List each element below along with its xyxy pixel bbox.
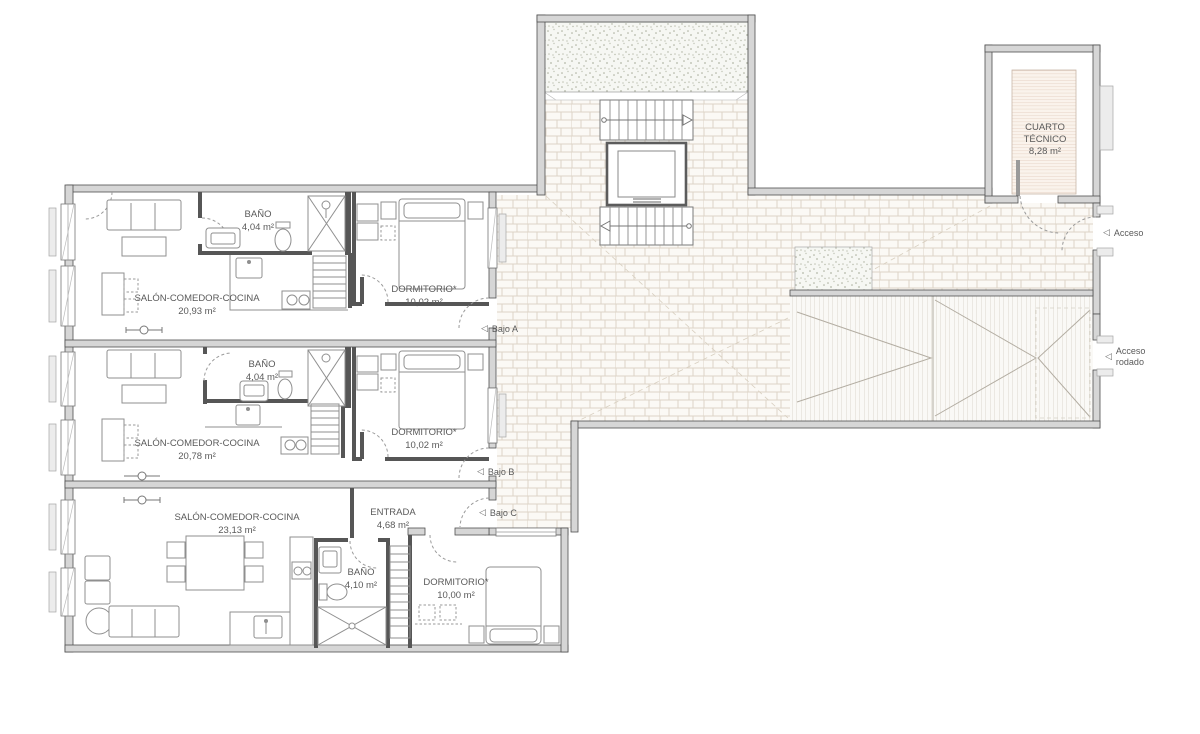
room-label-entrada: ENTRADA 4,68 m² bbox=[370, 506, 415, 532]
room-area: 8,28 m² bbox=[1024, 146, 1067, 158]
access-marker-acceso-rodado: ◁ Acceso rodado bbox=[1105, 346, 1145, 368]
direction-triangle-icon: ◁ bbox=[477, 468, 484, 477]
direction-triangle-icon: ◁ bbox=[1105, 353, 1112, 362]
gravel-bed-top bbox=[544, 22, 748, 100]
room-area: 20,78 m² bbox=[134, 450, 259, 463]
room-area: 10,02 m² bbox=[391, 439, 456, 452]
room-label-dormitorio-a: DORMITORIO* 10,02 m² bbox=[391, 283, 456, 309]
room-label-salon-b: SALÓN-COMEDOR-COCINA 20,78 m² bbox=[134, 437, 259, 463]
room-name: SALÓN-COMEDOR-COCINA bbox=[134, 292, 259, 305]
room-name: DORMITORIO* bbox=[391, 426, 456, 439]
room-label-cuarto-tecnico: CUARTO TÉCNICO 8,28 m² bbox=[1024, 122, 1067, 158]
room-area: 4,10 m² bbox=[345, 579, 377, 592]
access-label: Acceso bbox=[1114, 228, 1144, 238]
room-area: 4,68 m² bbox=[370, 519, 415, 532]
room-area: 23,13 m² bbox=[174, 524, 299, 537]
room-name: DORMITORIO* bbox=[423, 576, 488, 589]
access-label-line1: Acceso bbox=[1116, 346, 1146, 357]
room-name: BAÑO bbox=[345, 566, 377, 579]
elevator bbox=[607, 143, 686, 205]
unit-label: Bajo B bbox=[488, 467, 515, 477]
room-name: BAÑO bbox=[246, 358, 278, 371]
access-label-line2: rodado bbox=[1116, 357, 1146, 368]
unit-marker-bajo-a: ◁ Bajo A bbox=[481, 324, 518, 334]
room-label-salon-a: SALÓN-COMEDOR-COCINA 20,93 m² bbox=[134, 292, 259, 318]
access-marker-acceso: ◁ Acceso bbox=[1103, 228, 1143, 238]
room-label-dormitorio-b: DORMITORIO* 10,02 m² bbox=[391, 426, 456, 452]
room-name: BAÑO bbox=[242, 208, 274, 221]
room-name: DORMITORIO* bbox=[391, 283, 456, 296]
direction-triangle-icon: ◁ bbox=[481, 325, 488, 334]
vehicle-ramp bbox=[790, 296, 1093, 421]
unit-label: Bajo C bbox=[490, 508, 517, 518]
room-area: 4,04 m² bbox=[246, 371, 278, 384]
room-name: ENTRADA bbox=[370, 506, 415, 519]
unit-marker-bajo-c: ◁ Bajo C bbox=[479, 508, 517, 518]
room-label-bano-b: BAÑO 4,04 m² bbox=[246, 358, 278, 384]
apartment-c-furniture bbox=[85, 496, 559, 645]
gravel-bed-ramp bbox=[795, 247, 872, 293]
room-label-dormitorio-c: DORMITORIO* 10,00 m² bbox=[423, 576, 488, 602]
room-name: CUARTO bbox=[1024, 122, 1067, 134]
direction-triangle-icon: ◁ bbox=[1103, 229, 1110, 238]
room-label-bano-c: BAÑO 4,10 m² bbox=[345, 566, 377, 592]
unit-marker-bajo-b: ◁ Bajo B bbox=[477, 467, 514, 477]
room-name: SALÓN-COMEDOR-COCINA bbox=[174, 511, 299, 524]
unit-label: Bajo A bbox=[492, 324, 518, 334]
room-area: 10,02 m² bbox=[391, 296, 456, 309]
room-label-salon-c: SALÓN-COMEDOR-COCINA 23,13 m² bbox=[174, 511, 299, 537]
room-area: 20,93 m² bbox=[134, 305, 259, 318]
room-name: TÉCNICO bbox=[1024, 134, 1067, 146]
floor-plan: SALÓN-COMEDOR-COCINA 20,93 m² BAÑO 4,04 … bbox=[0, 0, 1200, 734]
room-name: SALÓN-COMEDOR-COCINA bbox=[134, 437, 259, 450]
staircase-upper-flight bbox=[600, 100, 693, 140]
floor-plan-drawing bbox=[0, 0, 1200, 734]
staircase-lower-flight bbox=[600, 207, 693, 245]
room-area: 4,04 m² bbox=[242, 221, 274, 234]
room-area: 10,00 m² bbox=[423, 589, 488, 602]
room-label-bano-a: BAÑO 4,04 m² bbox=[242, 208, 274, 234]
direction-triangle-icon: ◁ bbox=[479, 509, 486, 518]
